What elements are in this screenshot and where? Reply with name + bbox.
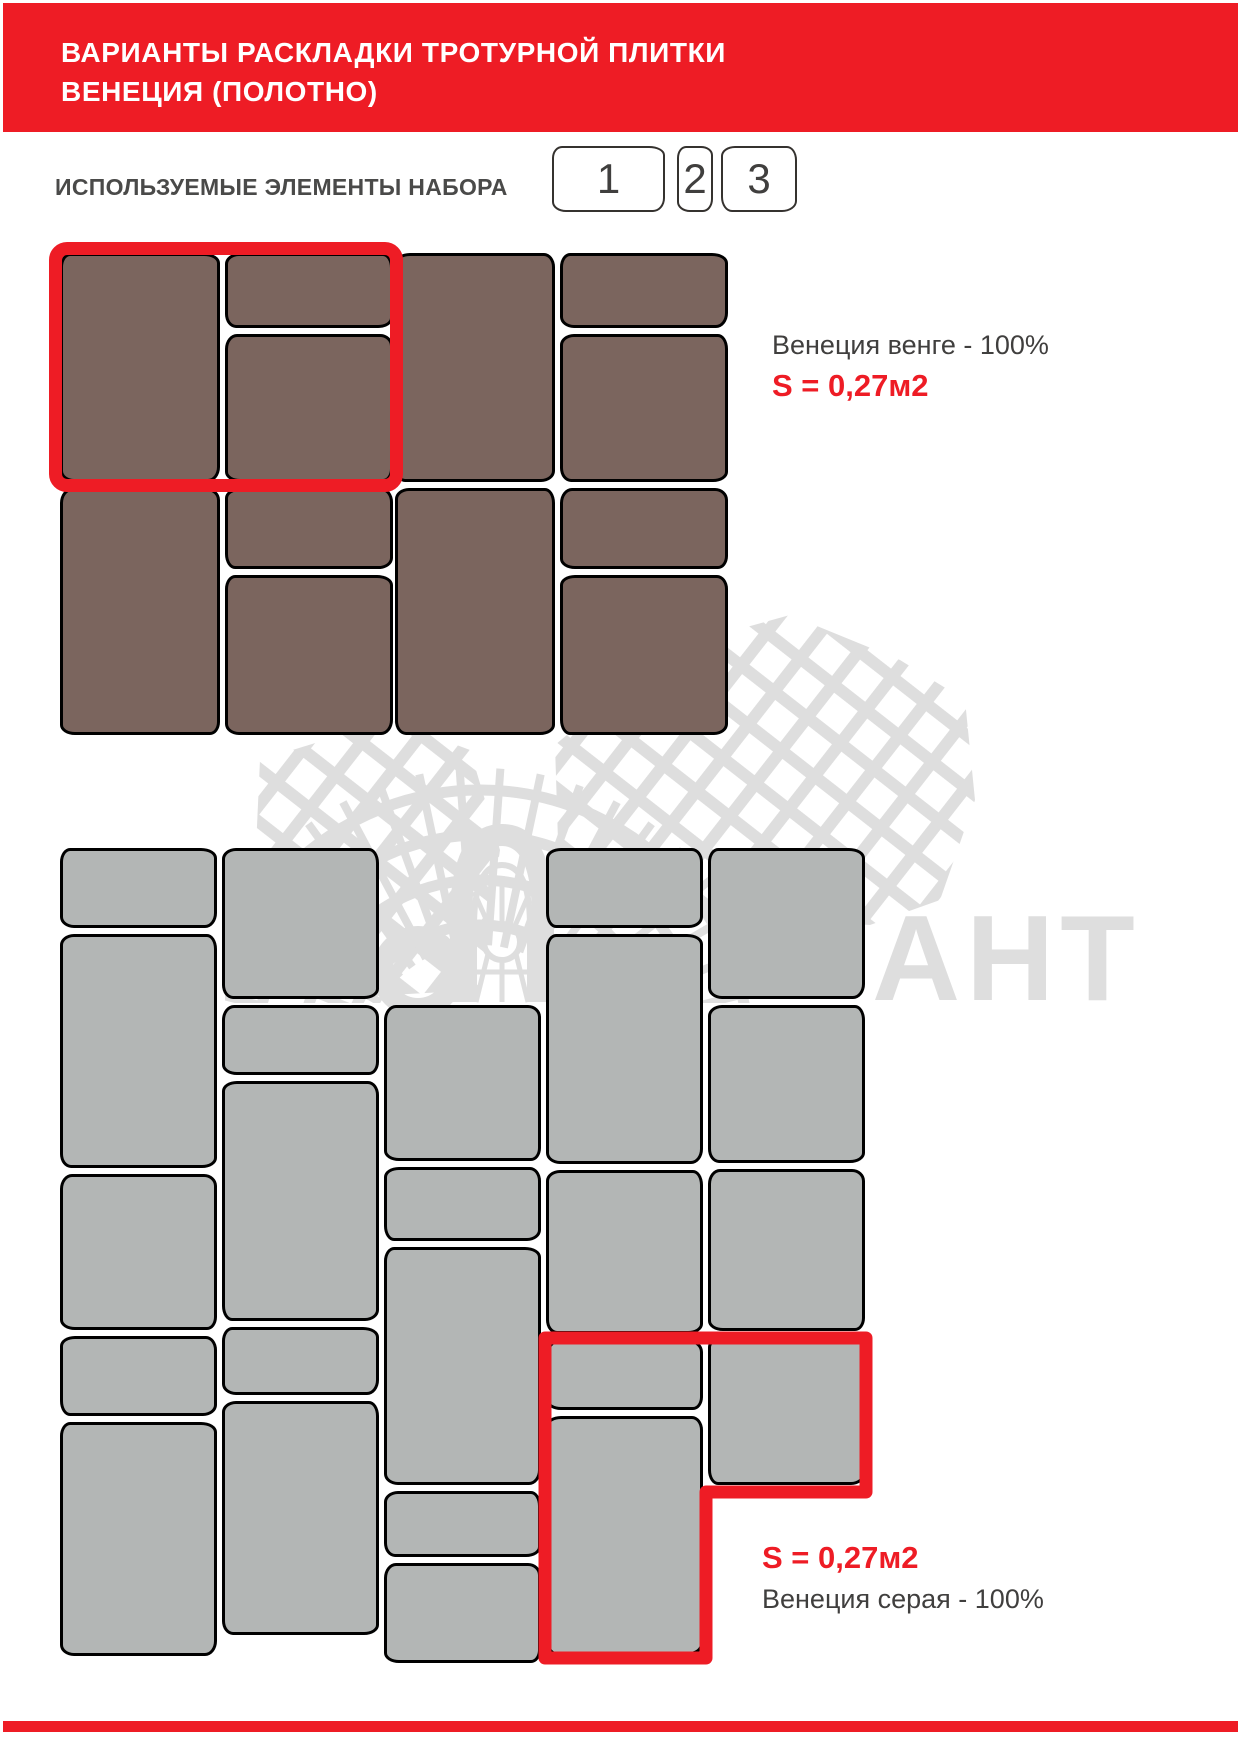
brown-paving-tile xyxy=(560,488,728,569)
set-element-3-number: 3 xyxy=(747,155,770,203)
gray-paving-tile xyxy=(384,1005,541,1161)
gray-paving-tile xyxy=(60,1174,217,1330)
set-element-2-number: 2 xyxy=(683,155,706,203)
set-element-1-number: 1 xyxy=(597,155,620,203)
gray-caption-name: Венеция серая - 100% xyxy=(762,1584,1044,1615)
gray-paving-tile xyxy=(546,1170,703,1334)
brown-paving-tile xyxy=(395,253,555,482)
watermark-letters: АНТ xyxy=(872,890,1141,1010)
gray-paving-tile xyxy=(60,1422,217,1656)
gray-paving-tile xyxy=(384,1563,541,1663)
arch-window-icon xyxy=(461,835,543,1002)
brown-layout-caption: Венеция венге - 100% S = 0,27м2 xyxy=(772,330,1049,404)
gray-paving-tile xyxy=(384,1167,541,1241)
gray-paving-tile xyxy=(222,848,379,999)
gray-paving-tile xyxy=(384,1491,541,1557)
set-element-1: 1 xyxy=(552,146,665,212)
gray-paving-tile xyxy=(708,1169,865,1331)
gray-paving-tile xyxy=(222,1327,379,1395)
brown-caption-area: S = 0,27м2 xyxy=(772,368,1049,404)
gray-caption-area: S = 0,27м2 xyxy=(762,1540,1044,1576)
brown-paving-tile xyxy=(225,488,393,569)
brown-caption-name: Венеция венге - 100% xyxy=(772,330,1049,361)
set-element-3: 3 xyxy=(721,146,797,212)
gray-paving-tile xyxy=(546,934,703,1164)
gray-paving-tile xyxy=(222,1401,379,1635)
gray-paving-tile xyxy=(708,1005,865,1163)
page-title-line1: ВАРИАНТЫ РАСКЛАДКИ ТРОТУРНОЙ ПЛИТКИ xyxy=(61,33,1238,72)
gray-paving-tile xyxy=(708,848,865,999)
gray-paving-tile xyxy=(60,934,217,1168)
elements-set-label: ИСПОЛЬЗУЕМЫЕ ЭЛЕМЕНТЫ НАБОРА xyxy=(55,174,508,201)
page-title-line2: ВЕНЕЦИЯ (ПОЛОТНО) xyxy=(61,72,1238,111)
header-bar: ВАРИАНТЫ РАСКЛАДКИ ТРОТУРНОЙ ПЛИТКИ ВЕНЕ… xyxy=(3,3,1238,132)
brown-paving-tile xyxy=(395,488,555,735)
brown-paving-tile xyxy=(560,575,728,735)
highlight-outline-gray-module xyxy=(535,1325,880,1670)
gray-paving-tile xyxy=(60,1336,217,1416)
gray-paving-tile xyxy=(222,1005,379,1075)
gray-layout-caption: S = 0,27м2 Венеция серая - 100% xyxy=(762,1540,1044,1615)
set-element-2: 2 xyxy=(677,146,713,212)
gray-paving-tile xyxy=(222,1081,379,1321)
gray-paving-tile xyxy=(384,1247,541,1485)
footer-bar xyxy=(3,1721,1238,1732)
gray-paving-tile xyxy=(546,848,703,928)
brown-paving-tile xyxy=(560,334,728,482)
brown-paving-tile xyxy=(560,253,728,328)
brown-paving-tile xyxy=(60,488,220,735)
brown-paving-tile xyxy=(225,575,393,735)
flyer-page: ВАРИАНТЫ РАСКЛАДКИ ТРОТУРНОЙ ПЛИТКИ ВЕНЕ… xyxy=(0,0,1241,1755)
highlight-box-brown-module xyxy=(49,242,403,492)
gray-paving-tile xyxy=(60,848,217,928)
